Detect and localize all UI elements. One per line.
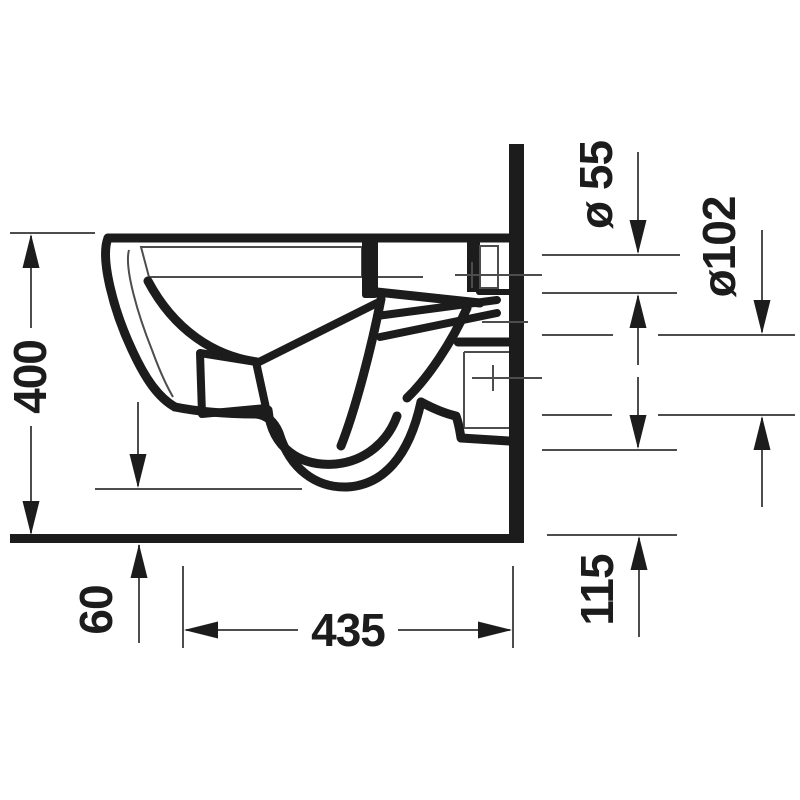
arrow-up-icon bbox=[754, 416, 771, 450]
arrow-down-icon bbox=[23, 501, 40, 535]
arrow-down-icon bbox=[630, 220, 647, 254]
dim-label-outlet-diameter: ø102 bbox=[693, 197, 745, 298]
arrow-down-icon bbox=[130, 454, 147, 488]
arrow-up-icon bbox=[630, 294, 647, 328]
inlet-socket bbox=[480, 246, 498, 288]
dim-outlet-height: 115 bbox=[542, 450, 677, 637]
dim-label-overall-height: 400 bbox=[4, 340, 56, 414]
bowl-rear-surface bbox=[259, 303, 377, 362]
arrow-up-icon bbox=[131, 544, 148, 578]
dim-label-inlet-diameter: ø 55 bbox=[570, 141, 622, 229]
arrow-up-icon bbox=[631, 536, 648, 570]
floor-line bbox=[10, 534, 524, 543]
dim-outlet-diameter: ø102 bbox=[542, 197, 795, 507]
dim-depth: 435 bbox=[183, 566, 513, 656]
toilet-front-inner-line bbox=[128, 250, 173, 397]
technical-drawing-page: 400 60 435 ø 55 bbox=[0, 0, 800, 800]
flush-box-right-cap bbox=[467, 241, 480, 292]
dim-label-outlet-height: 115 bbox=[571, 554, 623, 626]
bowl-cut-piece bbox=[200, 353, 266, 414]
centerline-outlet bbox=[472, 365, 542, 391]
dim-label-depth: 435 bbox=[311, 604, 385, 656]
arrow-right-icon bbox=[478, 622, 512, 639]
dim-floor-clearance: 60 bbox=[70, 402, 302, 643]
arrow-down-icon bbox=[754, 300, 771, 334]
dim-label-floor-clearance: 60 bbox=[70, 585, 122, 634]
arrow-left-icon bbox=[184, 622, 218, 639]
arrow-down-icon bbox=[630, 415, 647, 449]
arrow-up-icon bbox=[23, 234, 40, 268]
dim-flush-inlet-diameter: ø 55 bbox=[542, 141, 680, 449]
dim-overall-height: 400 bbox=[4, 233, 95, 535]
rim-section-box bbox=[141, 247, 362, 277]
toilet-technical-drawing: 400 60 435 ø 55 bbox=[0, 0, 800, 800]
